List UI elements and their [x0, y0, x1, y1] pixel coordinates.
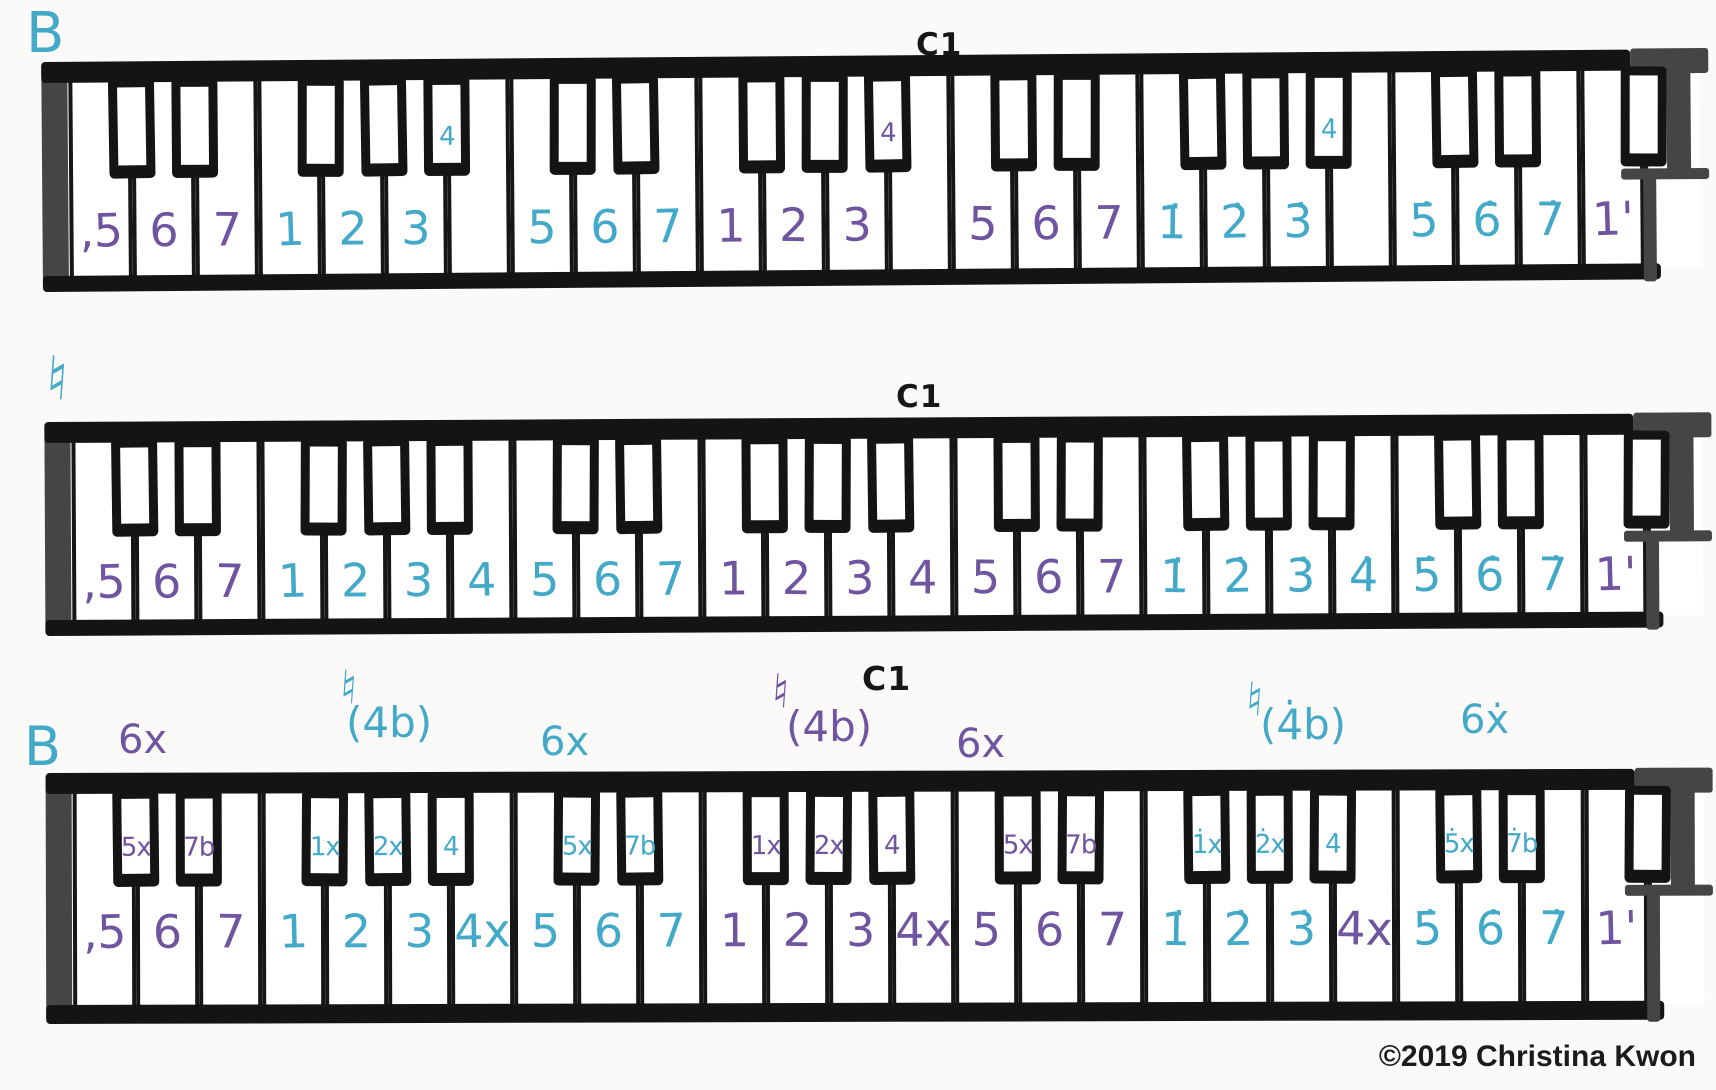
- white-key-label: 6̇: [1459, 903, 1522, 954]
- black-key-label: 7̇b: [1495, 830, 1549, 859]
- white-key-label: 6: [1017, 904, 1081, 956]
- black-key-label: 1x: [739, 832, 793, 861]
- white-key-label: 4x: [450, 905, 514, 957]
- alt-6-sharp-label: 6x: [118, 720, 167, 760]
- white-key-label: 2̇: [1206, 903, 1270, 955]
- black-key-label: 4: [424, 833, 478, 862]
- white-key-label: 6: [136, 907, 199, 958]
- c1-label: C1: [916, 30, 962, 61]
- right-end-stem: [1647, 893, 1660, 1022]
- c1-label: C1: [896, 382, 942, 413]
- white-key-label: 3̇: [1270, 904, 1333, 955]
- white-key-label: 3: [828, 904, 892, 956]
- keyboard-left-end: [46, 775, 73, 1022]
- white-key-label: 5: [514, 906, 577, 957]
- c1-label: C1: [862, 662, 911, 695]
- black-key-label: 5x: [109, 834, 163, 863]
- white-key-label: ‚5: [72, 906, 136, 958]
- white-key-label: 1': [1584, 902, 1648, 954]
- key-natural-label: ♮: [44, 347, 71, 411]
- white-key-label: 5: [955, 904, 1019, 956]
- alt-4-flat-label: (4b): [786, 706, 872, 748]
- black-key-label: 7b: [1054, 831, 1108, 860]
- black-key-label: 2̇x: [1243, 831, 1297, 860]
- black-key-label: 5̇x: [1432, 830, 1486, 859]
- white-key-label: 6: [577, 905, 641, 957]
- white-key-label: 2: [325, 906, 388, 957]
- black-key-label: 1x: [298, 833, 352, 862]
- white-key-label: 7: [199, 906, 263, 958]
- black-key-label: 4: [865, 832, 919, 861]
- black-key: [1624, 786, 1671, 883]
- keyboard-bottom-line: [46, 1001, 1664, 1024]
- keyboard-flat-key-chromatic: ‚5671234x5671234x5671̇2̇3̇4x5̇6̇7̇1'5x7b…: [0, 0, 1716, 1090]
- white-key-label: 4x: [1333, 903, 1397, 955]
- black-key-label: 7b: [172, 834, 226, 863]
- white-key-label: 1: [261, 906, 325, 958]
- white-key-label: 4x: [892, 905, 955, 956]
- alt-4-flat-label: (4̇b): [1260, 704, 1346, 746]
- black-key-label: 1̇x: [1180, 831, 1234, 860]
- white-key-label: 7: [639, 905, 703, 957]
- white-key-label: 7̇: [1522, 902, 1586, 954]
- right-end-vertical: [1671, 790, 1695, 891]
- white-key-label: 7: [1081, 904, 1144, 955]
- alt-4-flat-label: (4b): [346, 702, 432, 744]
- alt-6-sharp-label: 6x: [956, 724, 1005, 764]
- key-flat-label: B: [24, 720, 61, 774]
- alt-6-sharp-label: 6x: [540, 722, 589, 762]
- white-key-label: 1: [703, 905, 766, 956]
- key-flat-label: B: [26, 6, 64, 62]
- black-key-label: 5x: [550, 833, 604, 862]
- black-key-label: 7b: [613, 832, 667, 861]
- black-key-label: 5x: [991, 831, 1045, 860]
- white-key-label: 1̇: [1144, 903, 1208, 955]
- white-key-label: 2: [766, 904, 830, 956]
- white-key-label: 3: [388, 905, 452, 957]
- copyright-text: ©2019 Christina Kwon: [1379, 1040, 1696, 1074]
- black-key-label: 2x: [361, 833, 415, 862]
- alt-6-sharp-label: 6ẋ: [1460, 700, 1509, 740]
- black-key-label: 2x: [802, 832, 856, 861]
- scanned-piano-diagram: ‚5671235671235671̇2̇3̇5̇6̇7̇1'444̇‚56712…: [0, 0, 1716, 1090]
- right-end-ledge: [1625, 885, 1713, 896]
- black-key-label: 4̇: [1306, 831, 1360, 860]
- white-key-label: 5̇: [1395, 903, 1459, 955]
